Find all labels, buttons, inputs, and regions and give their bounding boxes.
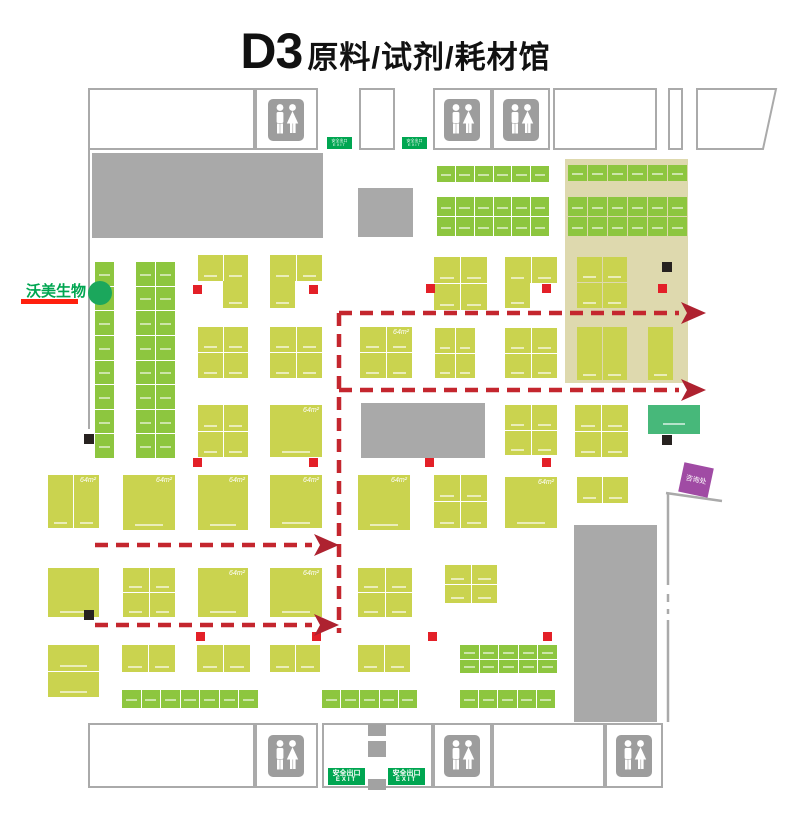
route-arrowhead xyxy=(681,302,706,324)
route-arrowhead xyxy=(681,379,706,401)
floor-plan: D3 原料/试剂/耗材馆 64m²64m²64m²64m²64m²64m²64m… xyxy=(0,0,791,817)
route-arrowhead xyxy=(314,534,339,556)
booth-area-label: 64m² xyxy=(303,477,319,484)
booth-area-label: 64m² xyxy=(229,570,245,577)
exhibitor-location-dot xyxy=(88,281,112,305)
booth-area-label: 64m² xyxy=(303,407,319,414)
booth-area-label: 64m² xyxy=(156,477,172,484)
booth-area-label: 64m² xyxy=(303,570,319,577)
booth-area-label: 64m² xyxy=(538,479,554,486)
exhibitor-label: 沃美生物 xyxy=(26,280,86,301)
route-arrowhead xyxy=(314,614,339,636)
booth-area-label: 64m² xyxy=(393,329,409,336)
route-path xyxy=(0,0,791,817)
booth-area-label: 64m² xyxy=(229,477,245,484)
booth-area-label: 64m² xyxy=(80,477,96,484)
booth-area-label: 64m² xyxy=(391,477,407,484)
